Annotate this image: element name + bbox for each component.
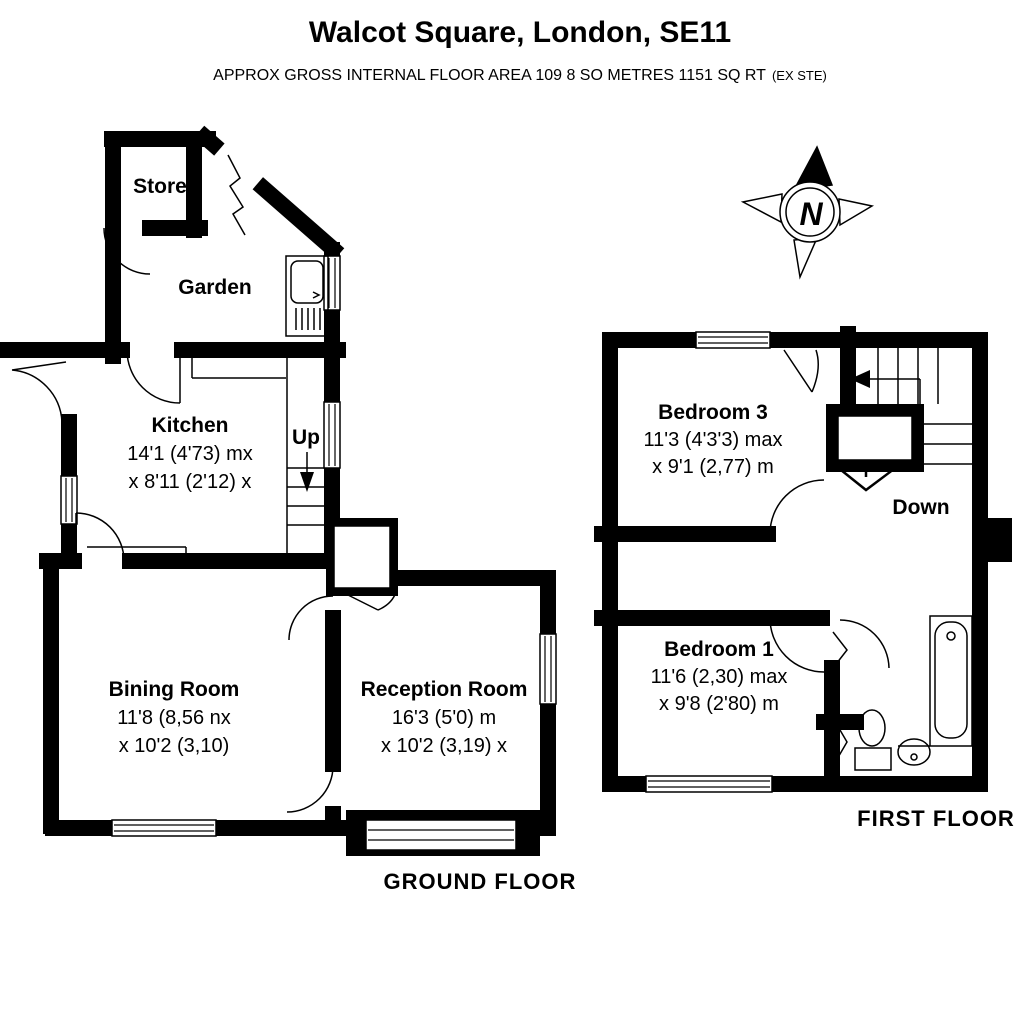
bedroom1-dim-2: x 9'8 (2'80) m [659, 693, 779, 715]
toilet [855, 710, 891, 770]
compass-east-point [839, 199, 872, 225]
compass-west-point [743, 194, 782, 222]
bedroom1-dim-1: 11'6 (2,30) max [651, 666, 788, 688]
sink-unit-outline [286, 256, 328, 336]
page-subtitle: APPROX GROSS INTERNAL FLOOR AREA 109 8 S… [213, 67, 827, 84]
basin-tap [911, 754, 917, 760]
dining-room-dim-1: 11'8 (8,56 nx [117, 707, 231, 729]
bathtub-outline [930, 616, 972, 746]
bathtub [930, 616, 972, 746]
page-title: Walcot Square, London, SE11 [309, 16, 731, 49]
bedroom1-label: Bedroom 1 [664, 638, 774, 661]
compass-south-point [794, 238, 817, 277]
entrance-door-gap [213, 143, 264, 190]
reception-room-dim-1: 16'3 (5'0) m [392, 707, 496, 729]
first-floor-plan: Bedroom 3 11'3 (4'3'3) max x 9'1 (2,77) … [602, 332, 1015, 831]
wash-basin [898, 739, 930, 765]
kitchen-label: Kitchen [151, 414, 228, 437]
bedroom3-dim-2: x 9'1 (2,77) m [652, 456, 774, 478]
dining-room-dim-2: x 10'2 (3,10) [119, 735, 230, 757]
page-subtitle-suffix: (EX STE) [772, 68, 827, 83]
first-floor-caption: FIRST FLOOR [857, 806, 1015, 831]
bathtub-tap [947, 632, 955, 640]
reception-room-label: Reception Room [361, 678, 528, 701]
ground-floor-caption: GROUND FLOOR [384, 869, 577, 894]
garden-label: Garden [178, 276, 252, 299]
compass-north-label: N [799, 196, 823, 232]
kitchen-dim-1: 14'1 (4'73) mx [127, 443, 252, 465]
sink-tap [313, 292, 319, 298]
basin-bowl [898, 739, 930, 765]
sink-bowl [291, 261, 323, 303]
page-subtitle-main: APPROX GROSS INTERNAL FLOOR AREA 109 8 S… [213, 67, 766, 84]
dining-room-label: Bining Room [109, 678, 240, 701]
reception-room-dim-2: x 10'2 (3,19) x [381, 735, 507, 757]
bedroom3-dim-1: 11'3 (4'3'3) max [644, 429, 783, 451]
garden-sink [286, 256, 328, 336]
stairs-up-arrow [300, 472, 314, 492]
header: Walcot Square, London, SE11 APPROX GROSS… [213, 16, 827, 84]
ground-floor-plan: Store Garden Kitchen 14'1 (4'73) mx x 8'… [6, 137, 576, 894]
store-label: Store [133, 175, 187, 198]
kitchen-dim-2: x 8'11 (2'12) x [129, 471, 252, 493]
floorplan-canvas: Walcot Square, London, SE11 APPROX GROSS… [0, 0, 1024, 1024]
sink-drainer-lines [296, 308, 320, 330]
stairs-down-label: Down [892, 496, 949, 519]
stairs-up-label: Up [292, 426, 320, 449]
bedroom3-label: Bedroom 3 [658, 401, 768, 424]
floorplan-page: Walcot Square, London, SE11 APPROX GROSS… [0, 0, 1024, 1024]
toilet-cistern [855, 748, 891, 770]
compass-rose: N [743, 147, 872, 277]
